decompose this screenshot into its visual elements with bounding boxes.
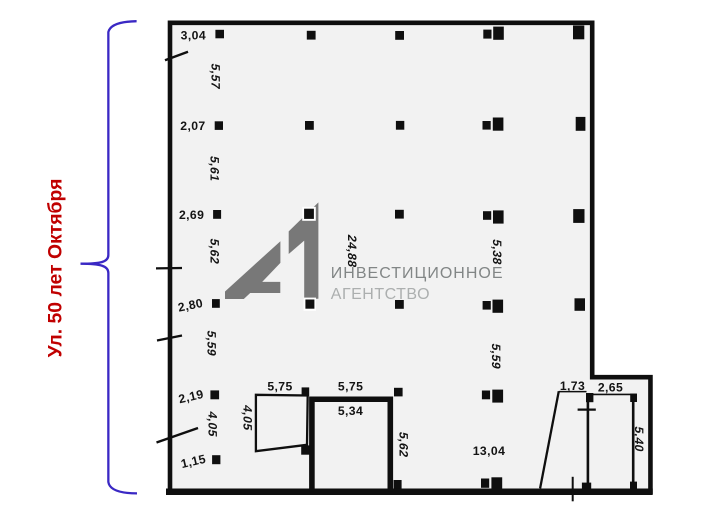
svg-text:5,62: 5,62 bbox=[207, 237, 221, 265]
svg-text:5,61: 5,61 bbox=[207, 155, 221, 183]
svg-text:1,73: 1,73 bbox=[560, 379, 585, 393]
svg-text:13,04: 13,04 bbox=[473, 444, 506, 458]
svg-text:24,88: 24,88 bbox=[345, 234, 359, 269]
svg-text:5,34: 5,34 bbox=[338, 404, 363, 418]
svg-text:5,40: 5,40 bbox=[632, 425, 646, 453]
svg-text:3,04: 3,04 bbox=[181, 29, 206, 43]
svg-text:4,05: 4,05 bbox=[205, 410, 219, 438]
svg-text:ИНВЕСТИЦИОННОЕ: ИНВЕСТИЦИОННОЕ bbox=[331, 265, 504, 282]
svg-text:2,07: 2,07 bbox=[180, 119, 205, 133]
svg-text:5,75: 5,75 bbox=[338, 380, 363, 394]
svg-text:2,65: 2,65 bbox=[598, 380, 623, 394]
svg-text:5,62: 5,62 bbox=[396, 431, 410, 459]
svg-text:Ул. 50 лет Октября: Ул. 50 лет Октября bbox=[44, 179, 66, 358]
svg-text:5,38: 5,38 bbox=[490, 238, 504, 266]
svg-text:5,59: 5,59 bbox=[204, 329, 218, 357]
svg-text:АГЕНТСТВО: АГЕНТСТВО bbox=[331, 286, 430, 303]
svg-text:5,75: 5,75 bbox=[267, 380, 292, 394]
svg-text:5,59: 5,59 bbox=[489, 342, 503, 370]
svg-text:4,05: 4,05 bbox=[240, 404, 254, 432]
svg-text:5,57: 5,57 bbox=[208, 62, 222, 90]
svg-text:2,69: 2,69 bbox=[179, 208, 204, 222]
